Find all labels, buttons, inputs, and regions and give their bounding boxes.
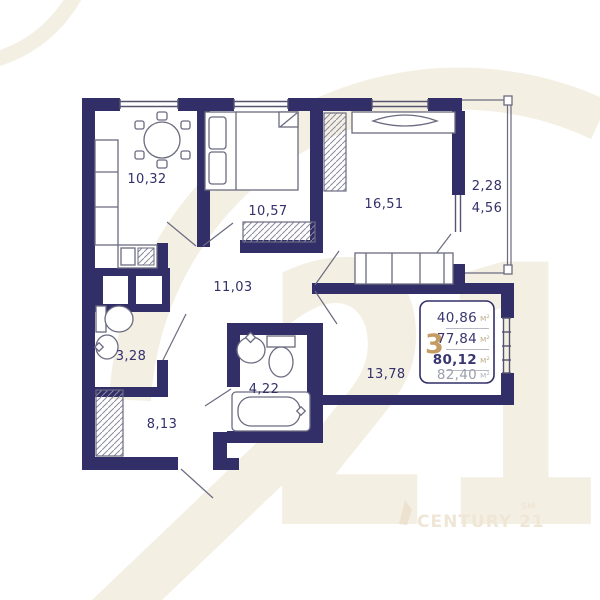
chair: [181, 121, 190, 129]
wardrobe: [324, 113, 346, 191]
pillow: [209, 117, 226, 149]
balcony-full-area-label: 4,56: [472, 201, 503, 216]
chair: [181, 151, 190, 159]
window-kitchen: [120, 99, 178, 109]
chair: [157, 112, 167, 120]
kitchen-counter: [95, 140, 118, 245]
entrance-door-swing: [181, 469, 213, 498]
bedroom-furniture: [205, 112, 315, 242]
floor-plan-image: 21 CENTURY 21 SM: [0, 0, 600, 600]
kitchen-area-label: 10,32: [127, 172, 166, 187]
bedroom-area-label: 10,57: [248, 204, 287, 219]
dining-table: [144, 122, 180, 158]
toilet-bowl: [269, 347, 293, 377]
wall-segment: [82, 98, 95, 470]
wall-segment: [227, 335, 240, 387]
area-without-balcony-value: 77,84: [437, 331, 477, 347]
sofa: [355, 253, 453, 284]
area-total-value: 82,40: [437, 367, 477, 383]
kitchen-stove: [138, 248, 154, 265]
wall-segment: [316, 395, 514, 405]
wall-segment: [157, 243, 168, 270]
wardrobe: [96, 390, 123, 456]
wall-segment: [213, 458, 239, 470]
wall-segment: [157, 360, 168, 387]
bedroom2-furniture: [96, 390, 123, 456]
wall-segment: [82, 457, 178, 470]
toilet-tank: [267, 336, 295, 347]
unit-label: м²: [480, 335, 490, 345]
unit-label: м²: [480, 314, 490, 324]
wall-segment: [428, 98, 462, 111]
vent-shaft-cell: [103, 276, 128, 304]
wall-segment: [227, 431, 323, 443]
window-bedroom: [234, 99, 288, 109]
hallway-area-label: 11,03: [213, 280, 252, 295]
toilet-bowl: [105, 306, 133, 332]
info-box: 3 40,86 м² 77,84 м² 80,12 м² 82,40 м²: [420, 301, 494, 383]
chair: [135, 151, 144, 159]
corridor-area-label: 13,78: [366, 367, 405, 382]
chair: [135, 121, 144, 129]
balcony-reduced-area-label: 2,28: [472, 179, 503, 194]
living-area-value: 40,86: [437, 310, 477, 326]
unit-label: м²: [480, 356, 490, 366]
wc-door-swing: [163, 314, 186, 360]
vent-shaft-cell: [136, 276, 162, 304]
wall-segment: [227, 323, 323, 335]
wc-area-label: 3,28: [116, 349, 147, 364]
watermark-corner-arc: [0, 0, 76, 60]
pillow: [209, 152, 226, 184]
wall-segment: [501, 294, 514, 318]
balcony-post: [504, 96, 512, 105]
wall-segment: [178, 98, 234, 111]
wall-segment: [82, 387, 168, 397]
balcony-post: [504, 265, 512, 274]
bedroom2-area-label: 8,13: [147, 417, 178, 432]
area-main-value: 80,12: [433, 352, 477, 368]
bathroom-area-label: 4,22: [249, 382, 280, 397]
brand-watermark-text: CENTURY 21: [417, 512, 545, 532]
wardrobe: [243, 222, 315, 242]
bathroom-door-swing: [205, 389, 231, 406]
wall-segment: [288, 98, 372, 111]
chair: [157, 160, 167, 168]
brand-service-mark: SM: [521, 502, 536, 512]
unit-label: м²: [480, 371, 490, 381]
living-area-label: 16,51: [364, 197, 403, 212]
